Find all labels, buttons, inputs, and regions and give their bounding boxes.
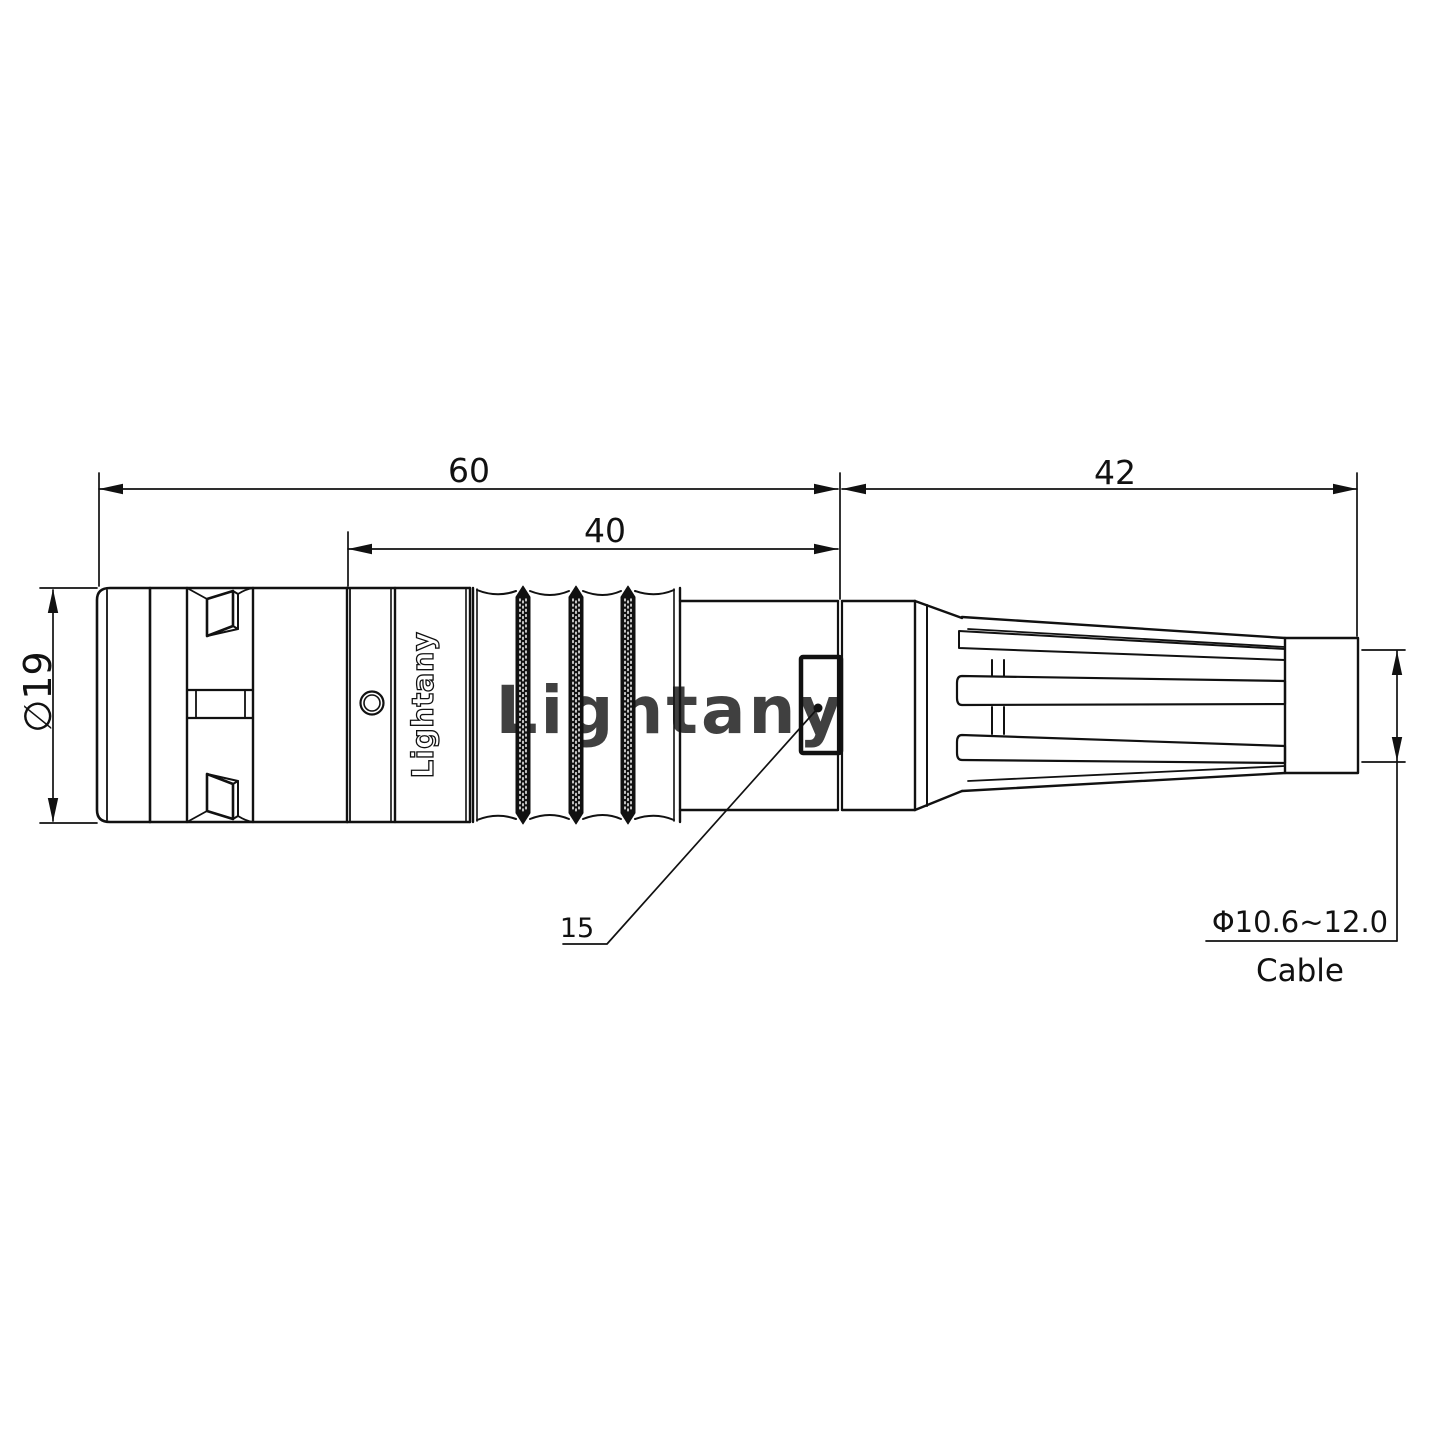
dim-60-label: 60 bbox=[448, 451, 490, 490]
dim-15-label: 15 bbox=[560, 913, 594, 944]
connector-technical-drawing: Lightany bbox=[0, 0, 1440, 1440]
knurl-band bbox=[516, 586, 530, 824]
cable-caption: Cable bbox=[1256, 953, 1344, 989]
dim-40-label: 40 bbox=[584, 511, 626, 550]
key-tab-bottom bbox=[187, 774, 253, 822]
dim-42-label: 42 bbox=[1094, 453, 1136, 492]
brand-text-on-body: Lightany bbox=[406, 632, 440, 779]
strain-relief-boot bbox=[915, 601, 1358, 810]
key-tab-top bbox=[187, 588, 253, 636]
brand-ring bbox=[466, 588, 470, 822]
arrowhead-icon bbox=[1392, 737, 1402, 761]
cable-diameter-label: Φ10.6~12.0 bbox=[1212, 905, 1388, 939]
arrowhead-icon bbox=[842, 484, 866, 494]
arrowhead-icon bbox=[99, 484, 123, 494]
keying-slot bbox=[187, 690, 253, 718]
dimension-cable bbox=[1206, 650, 1405, 941]
knurl-band bbox=[569, 586, 583, 824]
arrowhead-icon bbox=[48, 798, 58, 822]
boot-rib bbox=[957, 735, 1285, 763]
dim-diameter-19-label: ∅19 bbox=[16, 651, 60, 732]
knurl-band bbox=[621, 586, 635, 824]
coupling-end bbox=[842, 601, 915, 810]
arrowhead-icon bbox=[348, 544, 372, 554]
front-barrel bbox=[97, 588, 347, 822]
cable-sleeve bbox=[1285, 638, 1358, 773]
dimension-42 bbox=[842, 473, 1357, 636]
dimension-60 bbox=[99, 473, 840, 599]
arrowhead-icon bbox=[48, 589, 58, 613]
boot-rib bbox=[957, 676, 1285, 705]
arrowhead-icon bbox=[1392, 651, 1402, 675]
connector-technical-drawing-page: Lightany bbox=[0, 0, 1440, 1440]
arrowhead-icon bbox=[814, 484, 838, 494]
arrowhead-icon bbox=[1333, 484, 1357, 494]
arrowhead-icon bbox=[814, 544, 838, 554]
